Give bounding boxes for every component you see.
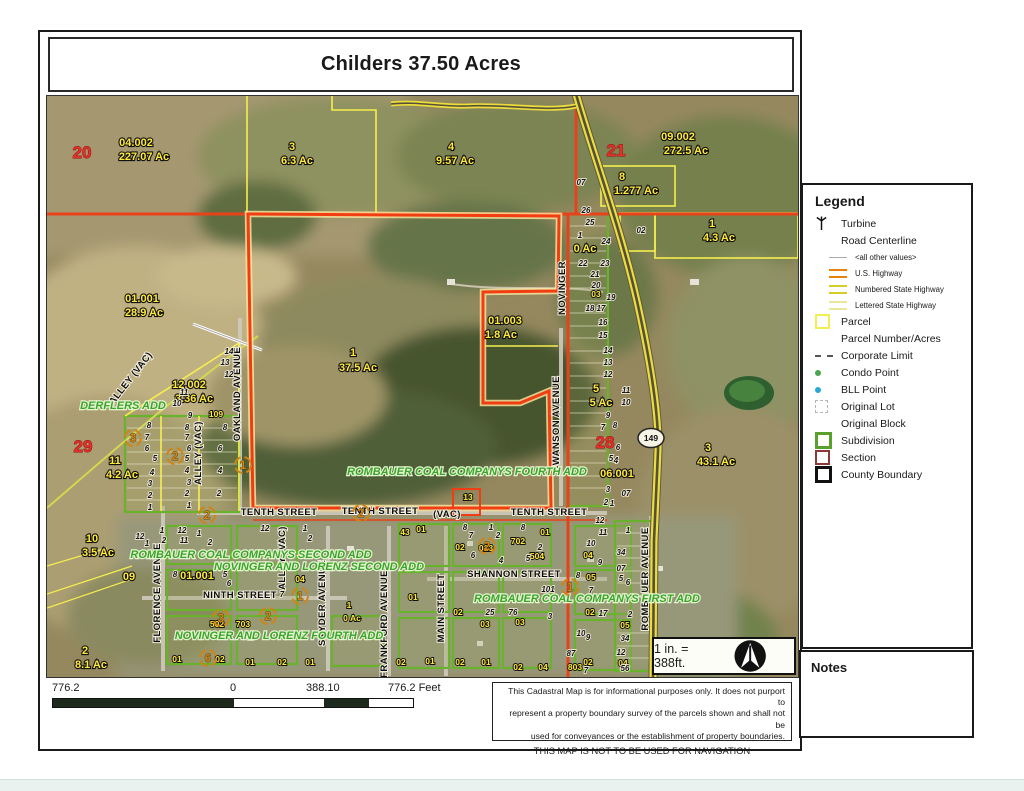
map-label: 16	[599, 318, 608, 327]
legend-label: Road Centerline	[841, 235, 917, 247]
map-label: 703	[236, 619, 250, 629]
map-label: 8	[521, 523, 526, 532]
map-label: 09	[123, 571, 135, 583]
map-label: 43.1 Ac	[697, 456, 735, 468]
map-label: 01	[425, 656, 435, 666]
map-label: 15	[599, 331, 608, 340]
map-label: 2	[265, 609, 272, 623]
map-label: 01.001	[180, 570, 214, 582]
map-label: 7	[589, 586, 594, 595]
map-label: 4	[448, 141, 455, 153]
map-label: 26	[581, 206, 591, 215]
map-label: 12	[604, 370, 613, 379]
scalebar: 776.2 0 388.10 776.2 Feet	[48, 682, 478, 724]
scalebar-seg	[53, 699, 234, 707]
map-label: 7	[145, 433, 150, 442]
legend-label: Subdivision	[841, 435, 895, 447]
map-label: SWANSON AVENUE	[551, 376, 562, 472]
map-label: 4	[217, 466, 223, 475]
map-label: 19	[607, 293, 616, 302]
map-label: 2	[207, 538, 213, 547]
map-label: 4	[149, 468, 155, 477]
map-label: 8	[185, 423, 190, 432]
aerial-map-canvas: 149 2021292804.002227.07 Ac36.3 Ac49.57 …	[47, 96, 798, 677]
map-label: 43	[400, 527, 410, 537]
map-label: 14	[225, 347, 234, 356]
map-label: 02	[453, 607, 463, 617]
map-label: 10	[622, 398, 631, 407]
legend-label: Parcel	[841, 316, 871, 328]
map-label: 3	[606, 485, 611, 494]
legend-label: Section	[841, 452, 876, 464]
map-label: 2	[627, 610, 633, 619]
map-label: 06.001	[600, 468, 634, 480]
map-label: OAKLAND AVENUE	[232, 347, 243, 441]
scalebar-seg	[369, 699, 413, 707]
disclaimer-line: used for conveyances or the establishmen…	[499, 731, 785, 742]
map-label: 12	[596, 516, 605, 525]
map-label: 04	[538, 662, 548, 672]
map-label: 0 Ac	[343, 613, 361, 623]
legend-item-numbered-state-highway: Numbered State Highway	[829, 281, 971, 297]
map-label: 9	[586, 633, 591, 642]
legend-label: BLL Point	[841, 384, 886, 396]
navigation-warning: THIS MAP IS NOT TO BE USED FOR NAVIGATIO…	[499, 746, 785, 756]
map-label: 1	[303, 524, 308, 533]
map-scale-note: 1 in. = 388ft.	[652, 637, 796, 675]
map-label: 6	[187, 444, 192, 453]
disclaimer-line: This Cadastral Map is for informational …	[499, 686, 785, 708]
map-label: 01.003	[488, 315, 522, 327]
map-label: 9.57 Ac	[436, 155, 474, 167]
bottom-edge-strip	[0, 779, 1024, 791]
map-label: 07	[617, 564, 626, 573]
map-label: 2	[537, 543, 543, 552]
map-label: 12	[178, 526, 187, 535]
map-label: 7	[584, 666, 589, 675]
map-label: 01	[481, 657, 491, 667]
map-label: 76	[509, 608, 518, 617]
notes-panel: Notes	[799, 650, 974, 738]
map-label: 02	[585, 607, 595, 617]
lettered-state-highway-icon	[829, 301, 855, 310]
map-label: NOVINGER	[557, 261, 568, 315]
map-label: 01	[172, 654, 182, 664]
map-label: 2	[204, 508, 211, 522]
map-label: 03	[515, 617, 525, 627]
legend-label: Numbered State Highway	[855, 285, 944, 294]
map-label: 7	[185, 433, 190, 442]
map-label: 09.002	[661, 131, 695, 143]
us-highway-icon	[829, 269, 855, 278]
map-label: 01	[416, 524, 426, 534]
legend-title: Legend	[815, 193, 971, 209]
highway-149-shield: 149	[638, 429, 664, 448]
map-label: 6	[616, 443, 621, 452]
map-label: 4	[613, 456, 619, 465]
legend-label: Corporate Limit	[841, 350, 913, 362]
map-label: 5	[593, 383, 599, 395]
map-label: 6	[626, 578, 631, 587]
map-label: 1.277 Ac	[614, 185, 658, 197]
map-label: 01.001	[125, 293, 159, 305]
map-label: 4	[184, 466, 190, 475]
map-label: 109	[209, 409, 223, 419]
map-label: 05	[620, 620, 630, 630]
map-label: 2	[495, 531, 501, 540]
legend-label: Parcel Number/Acres	[841, 333, 941, 345]
map-label: 4.2 Ac	[106, 469, 138, 481]
map-label: 2	[184, 489, 190, 498]
north-arrow-icon	[706, 639, 794, 673]
map-label: 03	[480, 619, 490, 629]
legend-item-original-block: Original Block	[815, 415, 971, 432]
map-label: 2	[82, 645, 88, 657]
numbered-state-highway-icon	[829, 285, 855, 294]
map-label: 3	[148, 479, 153, 488]
map-label: 10	[173, 399, 182, 408]
line-gray-icon	[829, 257, 855, 258]
legend-item-all-other-values: <all other values>	[829, 249, 971, 265]
scalebar-bar	[52, 698, 414, 708]
map-label: 01	[245, 657, 255, 667]
map-label: 3	[705, 442, 711, 454]
map-label: 1	[160, 526, 165, 535]
map-label: 7	[280, 590, 285, 599]
map-label: SHANNON STREET	[467, 569, 561, 580]
map-label: 1.8 Ac	[485, 329, 517, 341]
scalebar-seg	[324, 699, 369, 707]
map-label: 12	[617, 648, 626, 657]
map-label: 37.5 Ac	[339, 362, 377, 374]
map-label: 12.002	[172, 379, 206, 391]
legend-label: Turbine	[841, 218, 876, 230]
map-label: 29	[74, 437, 93, 456]
legend-label: Original Lot	[841, 401, 895, 413]
map-label: 2	[172, 449, 179, 463]
map-label: 272.5 Ac	[664, 145, 708, 157]
legend-item-bll-point: BLL Point	[815, 381, 971, 398]
scale-ratio-text: 1 in. = 388ft.	[654, 642, 698, 670]
map-label: TENTH STREET	[511, 507, 588, 518]
map-label: 12	[225, 370, 234, 379]
map-label: 17	[597, 304, 606, 313]
legend-label: <all other values>	[855, 253, 917, 262]
map-label: 11	[599, 528, 608, 537]
legend-item-parcel: Parcel	[815, 313, 971, 330]
scalebar-zero-label: 0	[230, 682, 236, 694]
original-lot-icon	[815, 400, 841, 413]
legend-item-parcel-number-acres: Parcel Number/Acres	[815, 330, 971, 347]
map-label: 6	[218, 444, 223, 453]
map-label: 34	[621, 634, 630, 643]
map-label: 02	[637, 226, 646, 235]
map-label: TENTH STREET	[241, 507, 318, 518]
map-label: 8	[223, 423, 228, 432]
legend-item-lettered-state-highway: Lettered State Highway	[829, 297, 971, 313]
map-label: 3	[187, 478, 192, 487]
map-label: 20	[591, 281, 601, 290]
map-label: (VAC)	[433, 509, 461, 520]
bll-point-icon	[815, 387, 841, 393]
map-label: DERFLERS ADD	[80, 400, 166, 412]
map-label: FRANKFORD AVENUE	[379, 570, 390, 677]
map-label: 25	[585, 218, 595, 227]
map-label: 23	[600, 259, 610, 268]
map-label: 56	[621, 664, 630, 673]
map-label: 03	[591, 289, 601, 299]
legend-label: U.S. Highway	[855, 269, 902, 278]
map-label: 11	[109, 455, 121, 467]
map-label: 6	[145, 444, 150, 453]
map-label: 02	[455, 657, 465, 667]
legend-item-us-highway: U.S. Highway	[829, 265, 971, 281]
map-label: 04.002	[119, 137, 153, 149]
map-label: 3	[130, 431, 137, 445]
map-label: 9	[188, 411, 193, 420]
map-label: 25	[485, 608, 495, 617]
map-label: 11	[180, 388, 189, 397]
map-label: 2	[307, 534, 313, 543]
legend-item-condo-point: Condo Point	[815, 364, 971, 381]
map-label: 7	[469, 531, 474, 540]
map-label: 1	[626, 526, 631, 535]
map-label: 5 Ac	[590, 397, 613, 409]
map-label: 04	[583, 550, 593, 560]
map-label: 5	[223, 570, 228, 579]
map-label: 2	[216, 489, 222, 498]
map-label: 1	[187, 501, 192, 510]
scalebar-mid-label: 388.10	[306, 682, 340, 694]
map-label: 10	[587, 539, 596, 548]
map-label: 2	[358, 506, 365, 520]
map-label: 1	[578, 231, 583, 240]
legend-item-county-boundary: County Boundary	[815, 466, 971, 483]
map-title: Childers 37.50 Acres	[321, 53, 521, 76]
page: Childers 37.50 Acres	[0, 0, 1024, 791]
map-label: 6	[205, 651, 212, 665]
map-label: 1	[145, 539, 150, 548]
county-boundary-icon	[815, 466, 841, 483]
map-label: 13	[463, 492, 473, 502]
map-sheet: Childers 37.50 Acres	[38, 30, 802, 751]
map-label: 07	[577, 178, 586, 187]
map-label: 04	[295, 574, 305, 584]
map-label: 3	[289, 141, 295, 153]
legend-item-subdivision: Subdivision	[815, 432, 971, 449]
legend-item-turbine: Turbine	[815, 215, 971, 232]
map-label: 11	[622, 386, 631, 395]
map-label: 1	[489, 523, 494, 532]
map-label: 87	[567, 649, 576, 658]
map-label: 1	[709, 218, 715, 230]
scalebar-seg	[234, 699, 324, 707]
map-label: 1	[240, 458, 247, 472]
svg-text:149: 149	[644, 433, 658, 443]
map-label: 5	[526, 554, 531, 563]
map-label: 01	[305, 657, 315, 667]
map-label: 101	[541, 585, 555, 594]
map-label: 12	[136, 532, 145, 541]
map-label: 2	[161, 536, 167, 545]
map-label: 20	[73, 143, 92, 162]
map-label: NOVINGER AND LORENZ SECOND ADD	[214, 561, 424, 573]
map-label: 10	[577, 629, 586, 638]
map-label: 1	[610, 499, 615, 508]
map-label: 5	[619, 574, 624, 583]
map-label: 8	[173, 570, 178, 579]
map-label: 1	[350, 347, 356, 359]
map-label: 28.9 Ac	[125, 307, 163, 319]
subdivision-icon	[815, 432, 841, 449]
map-label: 14	[604, 346, 613, 355]
map-label: 3	[218, 611, 225, 625]
map-label: 4.3 Ac	[703, 232, 735, 244]
scalebar-right-label: 776.2 Feet	[388, 682, 441, 694]
pond-center	[729, 380, 765, 402]
map-label: 227.07 Ac	[119, 151, 169, 163]
turbine-icon	[815, 216, 841, 231]
map-label: 1	[347, 600, 352, 610]
legend-item-corporate-limit: Corporate Limit	[815, 347, 971, 364]
map-label: ALLEY (VAC)	[193, 421, 204, 485]
map-label: 13	[604, 358, 613, 367]
map-label: 1	[148, 503, 153, 512]
map-label: 702	[511, 536, 525, 546]
map-label: 24	[601, 237, 611, 246]
map-label: 2	[484, 539, 491, 553]
map-label: 05	[586, 572, 596, 582]
map-label: 1	[297, 589, 304, 603]
map-label: NINTH STREET	[203, 590, 277, 601]
map-label: 10	[86, 533, 98, 545]
map-label: 3.5 Ac	[82, 547, 114, 559]
legend-item-section: Section	[815, 449, 971, 466]
legend-label: County Boundary	[841, 469, 922, 481]
map-label: 01	[408, 592, 418, 602]
map-label: 02	[277, 657, 287, 667]
legend-label: Condo Point	[841, 367, 899, 379]
map-label: NOVINGER AND LORENZ FOURTH ADD	[175, 630, 384, 642]
corporate-limit-icon	[815, 355, 841, 357]
disclaimer-box: This Cadastral Map is for informational …	[492, 682, 792, 741]
map-label: 02	[396, 657, 406, 667]
map-label: 6	[227, 579, 232, 588]
map-label: 01	[540, 527, 550, 537]
map-title-box: Childers 37.50 Acres	[48, 37, 794, 92]
map-label: 5	[185, 454, 190, 463]
map-label: ROMBAUER AVENUE	[640, 527, 651, 630]
map-label: 803	[568, 662, 582, 672]
section-icon	[815, 450, 841, 465]
map-label: 34	[617, 548, 626, 557]
map-label: 11	[180, 536, 189, 545]
legend-label: Lettered State Highway	[855, 301, 936, 310]
map-label: 28	[596, 433, 615, 452]
map-label: 8	[147, 421, 152, 430]
map-label: 8	[576, 571, 581, 580]
map-label: 02	[455, 542, 465, 552]
map-label: 8	[613, 421, 618, 430]
map-label: MAIN STREET	[436, 574, 447, 643]
map-label: ROMBAUER COAL COMPANYS FIRST ADD	[474, 593, 700, 605]
condo-point-icon	[815, 370, 841, 376]
scalebar-left-label: 776.2	[52, 682, 80, 694]
legend-item-original-lot: Original Lot	[815, 398, 971, 415]
map-label: ROMBAUER COAL COMPANYS SECOND ADD	[130, 549, 371, 561]
map-label: 1	[567, 580, 574, 594]
map-label: ROMBAUER COAL COMPANYS FOURTH ADD	[347, 466, 587, 478]
map-label: 8	[463, 523, 468, 532]
legend-item-road-centerline: Road Centerline	[815, 232, 971, 249]
map-label: 5	[153, 454, 158, 463]
map-label: 504	[530, 551, 544, 561]
map-label: 7	[601, 423, 606, 432]
map-label: 0 Ac	[574, 243, 597, 255]
map-label: 22	[578, 259, 588, 268]
legend-panel: Legend Turbine Road Centerline <all othe…	[801, 183, 973, 649]
map-label: 12	[261, 524, 270, 533]
map-label: 18	[586, 304, 595, 313]
parcel-icon	[815, 314, 841, 329]
map-label: 6.3 Ac	[281, 155, 313, 167]
map-label: 6	[471, 551, 476, 560]
map-label: 2	[147, 491, 153, 500]
map-label: 13	[221, 358, 230, 367]
map-label: 8	[619, 171, 625, 183]
disclaimer-line: represent a property boundary survey of …	[499, 708, 785, 730]
map-label: 8.1 Ac	[75, 659, 107, 671]
map-label: 1	[197, 529, 202, 538]
map-area: 149 2021292804.002227.07 Ac36.3 Ac49.57 …	[46, 95, 799, 678]
map-label: 21	[590, 270, 600, 279]
map-label: 4	[498, 556, 504, 565]
map-label: 3	[548, 612, 553, 621]
map-label: 9	[606, 411, 611, 420]
map-label: 21	[607, 141, 626, 160]
map-label: 07	[622, 489, 631, 498]
legend-label: Original Block	[841, 418, 906, 430]
notes-title: Notes	[811, 660, 972, 675]
map-label: 2	[603, 498, 609, 507]
map-label: 9	[598, 558, 603, 567]
map-label: 17	[599, 609, 608, 618]
map-label: 02	[513, 662, 523, 672]
